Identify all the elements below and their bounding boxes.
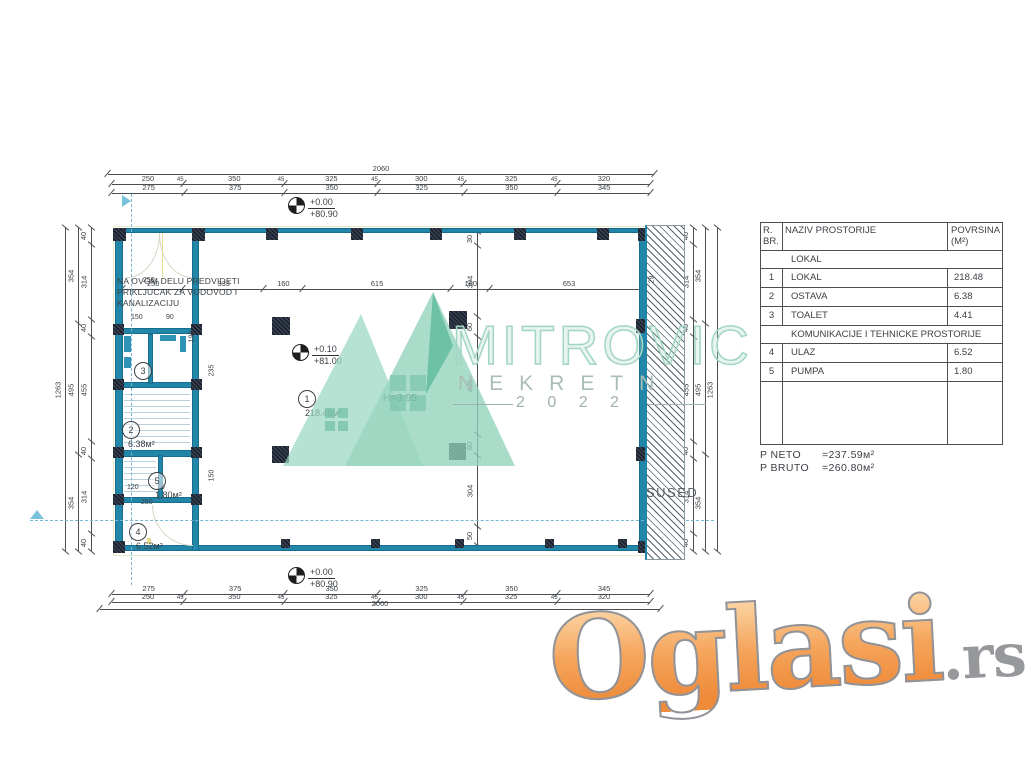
watermark-line <box>648 404 706 405</box>
section-marker-icon <box>30 510 44 519</box>
dim-tick-label: 45 <box>457 177 464 183</box>
dim-label: 60 <box>466 323 474 331</box>
dim-label: 653 <box>490 280 648 288</box>
dim-label: 250 <box>112 175 184 183</box>
dim-label: 40 <box>80 447 88 455</box>
structural-column <box>351 228 363 240</box>
dim-segment: 275 <box>112 184 185 194</box>
dim-label-small: 235 <box>208 365 215 377</box>
dim-segment: 653 <box>490 280 648 290</box>
dim-segment: 50 <box>468 527 478 545</box>
dimension-row-top-2: 275375350325350345 <box>112 184 650 194</box>
table-row: 5PUMPA1.80 <box>761 363 1002 382</box>
dim-label: 320 <box>558 175 650 183</box>
net-area-label: P NETO <box>760 449 822 461</box>
elevation-value: +80.90 <box>308 579 340 590</box>
dim-tick-label: 45 <box>551 177 558 183</box>
dim-segment: 314 <box>684 245 694 320</box>
plumbing-fixture <box>124 357 131 368</box>
oglasi-logo-text: Oglasi <box>546 582 944 718</box>
room-number-badge: 2 <box>122 421 140 439</box>
structural-column <box>281 539 290 548</box>
dim-label: 354 <box>67 497 75 510</box>
structural-column <box>272 317 290 335</box>
plumbing-fixture <box>180 336 186 352</box>
structural-column <box>192 228 205 241</box>
table-header-rbr: R. BR. <box>761 223 783 250</box>
dim-segment: 160 <box>264 280 303 290</box>
table-cell-area: 4.41 <box>948 307 1002 325</box>
elevation-value: +81.00 <box>312 356 344 367</box>
dim-segment: 350 <box>285 184 378 194</box>
dim-label: 354 <box>694 270 702 283</box>
dim-segment: 375 <box>185 184 285 194</box>
dim-segment: 354 <box>69 228 79 324</box>
dim-segment: 615 <box>303 280 452 290</box>
structural-column <box>191 494 202 505</box>
dimension-col-left-mid: 354495354 <box>69 228 79 551</box>
height-label: H=3.95 <box>383 392 417 404</box>
table-cell-empty <box>948 382 1002 444</box>
gross-area-value: =260.80м² <box>822 462 875 474</box>
dim-segment: 40 <box>82 534 92 551</box>
table-cell-name: TOALET <box>783 307 948 325</box>
structural-column <box>113 447 124 458</box>
table-cell-empty <box>761 382 783 444</box>
table-cell-name: LOKAL <box>783 269 948 287</box>
dim-segment: 304 <box>468 456 478 527</box>
dim-label-small: 250 <box>141 499 153 506</box>
structural-column <box>113 541 125 553</box>
dimension-col-right-total: 1263 <box>708 228 718 551</box>
room-number-badge: 1 <box>298 390 316 408</box>
dim-label: 2060 <box>108 165 654 173</box>
dim-segment: 354 <box>69 455 79 551</box>
note-line: PRIKLJUCAK ZA VODOVOD I <box>117 287 240 298</box>
room-number-badge: 5 <box>148 472 166 490</box>
dim-segment: 345 <box>558 184 650 194</box>
oglasi-logo: Oglasi .rs <box>546 577 1026 718</box>
dim-label: 314 <box>80 276 88 289</box>
dim-label: 40 <box>80 324 88 332</box>
table-cell-number: 1 <box>761 269 783 287</box>
dim-segment: 325 <box>378 184 465 194</box>
structural-column <box>191 379 202 390</box>
dim-label-small: 150 <box>208 470 215 482</box>
table-cell-area: 218.48 <box>948 269 1002 287</box>
structural-column <box>449 443 466 460</box>
elevation-symbol-icon <box>292 344 309 361</box>
note-line: KANALIZACIJU <box>117 298 240 309</box>
dim-label: 435 <box>466 380 474 393</box>
table-cell-number: 3 <box>761 307 783 325</box>
dim-label-interior-end: 29 <box>648 276 655 284</box>
net-area-summary: P NETO =237.59м² <box>760 449 875 461</box>
dim-segment: 1263 <box>56 228 66 551</box>
oglasi-logo-suffix: .rs <box>940 620 1026 694</box>
dim-label: 1263 <box>706 381 714 398</box>
table-cell-number: 5 <box>761 363 783 381</box>
elevation-marker-interior: +0.10 +81.00 <box>292 344 344 367</box>
dim-label-small: 150 <box>131 314 143 321</box>
dim-label: 375 <box>185 184 285 192</box>
utility-note: NA OVOM DELU PREDVIDETI PRIKLJUCAK ZA VO… <box>117 276 240 309</box>
table-cell-area: 6.52 <box>948 344 1002 362</box>
header-text: R. <box>763 225 782 236</box>
dim-segment: 1263 <box>708 228 718 551</box>
dim-label: 495 <box>694 383 702 396</box>
dim-label-small: 190 <box>188 331 195 343</box>
watermark-line <box>453 404 513 405</box>
table-cell-name: PUMPA <box>783 363 948 381</box>
plumbing-fixture <box>124 336 131 352</box>
structural-column <box>113 324 124 335</box>
dim-label: 325 <box>378 184 465 192</box>
room-area-label: 6.52м² <box>136 541 163 551</box>
dim-segment: 354 <box>696 455 706 551</box>
table-cell-name: OSTAVA <box>783 288 948 306</box>
elevation-value: +80.90 <box>308 209 340 220</box>
dim-tick-label: 45 <box>177 177 184 183</box>
dim-label: 345 <box>558 184 650 192</box>
wall-segment <box>115 328 199 334</box>
structural-column <box>191 447 202 458</box>
dim-label: 160 <box>264 280 303 288</box>
plumbing-fixture <box>160 335 176 341</box>
room-area-label: 218.48м² <box>305 408 342 418</box>
dim-segment: 455 <box>82 337 92 443</box>
structural-column <box>597 228 609 240</box>
dim-label: 304 <box>466 485 474 498</box>
elevation-symbol-icon <box>288 567 305 584</box>
room-number-badge: 4 <box>129 523 147 541</box>
dim-label-small: 90 <box>166 314 174 321</box>
structural-column <box>266 228 278 240</box>
dimension-col-left-inner: 40314404554031440 <box>82 228 92 551</box>
elevation-marker-top: +0.00 +80.90 <box>288 197 340 220</box>
table-row: LOKAL <box>761 251 1002 269</box>
header-text: BR. <box>763 236 782 247</box>
structural-column <box>113 379 124 390</box>
table-body: LOKAL1LOKAL218.482OSTAVA6.383TOALET4.41K… <box>761 251 1002 444</box>
dim-label: 300 <box>378 175 464 183</box>
table-cell-area: 1.80 <box>948 363 1002 381</box>
elevation-value: +0.10 <box>312 344 339 356</box>
table-row: 2OSTAVA6.38 <box>761 288 1002 307</box>
note-line: NA OVOM DELU PREDVIDETI <box>117 276 240 287</box>
table-row <box>761 382 1002 444</box>
net-area-value: =237.59м² <box>822 449 875 461</box>
section-line-horizontal <box>30 520 714 521</box>
door-panel-mark <box>162 233 163 277</box>
structural-column <box>514 228 526 240</box>
table-cell-name: ULAZ <box>783 344 948 362</box>
table-cell-number: 4 <box>761 344 783 362</box>
dim-label: 275 <box>112 184 185 192</box>
floor-plan-image: 2060 2503504532545300453254532045 275375… <box>0 0 1026 773</box>
dim-label: 60 <box>466 441 474 449</box>
dim-label: 615 <box>303 280 452 288</box>
dim-segment: 304 <box>468 246 478 317</box>
dim-label: 455 <box>80 383 88 396</box>
table-cell-number: 2 <box>761 288 783 306</box>
dim-label: 50 <box>466 532 474 540</box>
table-header-naziv: NAZIV PROSTORIJE <box>783 223 948 250</box>
neighbor-label: SUSED <box>646 485 698 500</box>
dim-label-small: 120 <box>127 484 139 491</box>
dim-label: 1263 <box>54 381 62 398</box>
structural-column <box>272 446 289 463</box>
dim-tick-label: 45 <box>278 177 285 183</box>
dim-segment: 314 <box>82 245 92 320</box>
structural-column <box>618 539 627 548</box>
room-number-badge: 3 <box>134 362 152 380</box>
dimension-row-top-total: 2060 <box>108 165 654 175</box>
gross-area-summary: P BRUTO =260.80м² <box>760 462 875 474</box>
dimension-col-center: 30304604356030450 <box>468 232 478 545</box>
header-text: (M²) <box>951 236 1002 247</box>
structural-column <box>371 539 380 548</box>
wall-segment <box>115 382 199 388</box>
structural-column <box>430 228 442 240</box>
header-text: POVRSINA <box>951 225 1002 236</box>
section-marker-icon <box>122 195 131 207</box>
table-row: KOMUNIKACIJE I TEHNICKE PROSTORIJE <box>761 326 1002 344</box>
elevation-marker-bottom: +0.00 +80.90 <box>288 567 340 590</box>
table-row: 3TOALET4.41 <box>761 307 1002 326</box>
dim-label: 350 <box>465 184 558 192</box>
table-header-povrsina: POVRSINA (M²) <box>948 223 1002 250</box>
dim-label: 40 <box>80 232 88 240</box>
table-cell-area: 6.38 <box>948 288 1002 306</box>
dim-segment: 354 <box>696 228 706 324</box>
dim-segment: 314 <box>82 459 92 534</box>
table-row: 4ULAZ6.52 <box>761 344 1002 363</box>
elevation-symbol-icon <box>288 197 305 214</box>
dim-segment: 495 <box>69 324 79 455</box>
structural-column <box>449 311 467 329</box>
dim-tick-label: 45 <box>371 177 378 183</box>
table-header-row: R. BR. NAZIV PROSTORIJE POVRSINA (M²) <box>761 223 1002 251</box>
table-section-label: KOMUNIKACIJE I TEHNICKE PROSTORIJE <box>761 326 1002 343</box>
dim-label: 325 <box>464 175 558 183</box>
dim-segment: 40 <box>684 534 694 551</box>
table-row: 1LOKAL218.48 <box>761 269 1002 288</box>
room-area-label: 6.38м² <box>128 439 155 449</box>
dim-segment: 350 <box>465 184 558 194</box>
structural-column <box>455 539 464 548</box>
elevation-value: +0.00 <box>308 197 335 209</box>
room-schedule-table: R. BR. NAZIV PROSTORIJE POVRSINA (M²) LO… <box>760 222 1003 445</box>
dim-label: 325 <box>285 175 379 183</box>
dim-segment: 435 <box>468 337 478 435</box>
dim-label: 495 <box>67 383 75 396</box>
structural-column <box>113 494 124 505</box>
dim-label: 40 <box>80 539 88 547</box>
structural-column <box>113 228 126 241</box>
dimension-col-left-total: 1263 <box>56 228 66 551</box>
dim-label: 350 <box>285 184 378 192</box>
table-cell-empty <box>783 382 948 444</box>
elevation-value: +0.00 <box>308 567 335 579</box>
dim-segment: 2060 <box>108 165 654 175</box>
dim-label: 354 <box>67 270 75 283</box>
structural-column <box>545 539 554 548</box>
room-area-label: 1.80м² <box>155 490 182 500</box>
table-section-label: LOKAL <box>761 251 1002 268</box>
dim-label: 350 <box>184 175 285 183</box>
gross-area-label: P BRUTO <box>760 462 822 474</box>
dim-label: 304 <box>466 275 474 288</box>
dim-label: 314 <box>80 490 88 503</box>
